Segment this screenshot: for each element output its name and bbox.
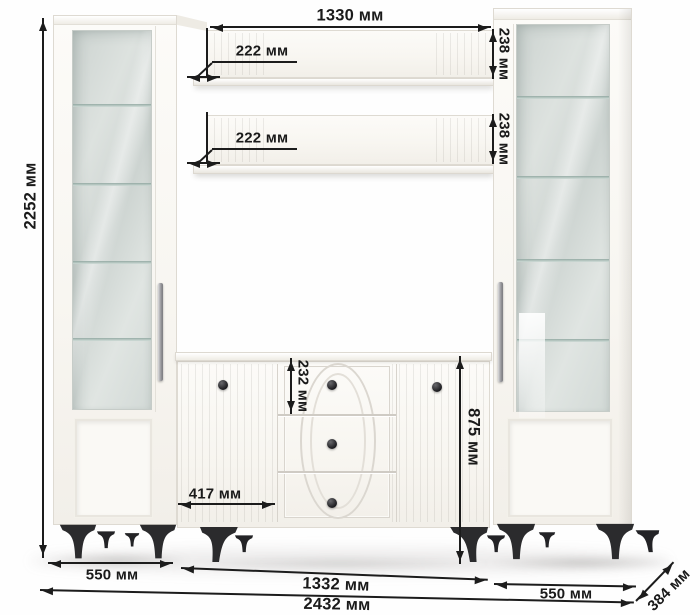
right-side-shade (618, 9, 631, 524)
door-seam (396, 364, 397, 522)
dim-shelf-depth-upper-label: 222 мм (236, 43, 289, 60)
right-door-seam (513, 24, 514, 412)
cabinet-leg (594, 523, 636, 561)
cabinet-leg (448, 527, 494, 563)
drawer-separator (278, 414, 396, 416)
dim-left-cabinet-width-label: 550 мм (86, 567, 139, 584)
glass-shelf (73, 183, 151, 186)
cabinet-leg (96, 525, 116, 555)
dim-top-drawer-height-label: 232 мм (295, 360, 312, 413)
dim-total-width-label: 2432 мм (303, 595, 370, 615)
left-cabinet-top-side (177, 15, 207, 31)
drawer-knob-2 (327, 439, 337, 449)
left-door-seam (155, 26, 156, 412)
drawer-separator (278, 471, 396, 473)
dim-sideboard-height-label: 875 мм (464, 408, 483, 466)
drawer-knob-3 (327, 498, 337, 508)
door-seam (277, 364, 278, 522)
glass-reflection (519, 313, 545, 425)
shelf-groove-right (436, 33, 488, 75)
dim-shelf-face-lower-label: 238 мм (496, 113, 513, 166)
left-door-handle (158, 283, 163, 381)
glass-shelf (73, 104, 151, 107)
dim-shelf-depth-lower-label: 222 мм (236, 130, 289, 147)
right-lower-panel (508, 419, 612, 517)
dim-sideboard-width-label: 1332 мм (302, 574, 370, 595)
cabinet-leg (194, 527, 240, 563)
right-cabinet-top (494, 9, 631, 20)
shelf-upper-ledge (193, 78, 495, 86)
dim-total-height-label: 2252 мм (22, 162, 41, 229)
cabinet-leg (634, 525, 665, 558)
oval-molding-inner (310, 373, 366, 509)
glass-shelf (517, 96, 609, 99)
dim-door-width-label: 417 мм (189, 486, 242, 503)
left-cabinet-top (54, 16, 176, 25)
glass-shelf (517, 176, 609, 179)
cabinet-leg (538, 525, 556, 555)
furniture-dimension-diagram: 1330 мм 2252 мм 222 мм 222 мм 238 мм 238… (0, 0, 700, 615)
shelf-lower-ledge (193, 165, 495, 174)
door-knob-left (218, 380, 228, 390)
drawer-knob-1 (327, 380, 337, 390)
cabinet-leg (138, 523, 178, 561)
cabinet-leg (58, 523, 98, 561)
left-glass-door (72, 30, 152, 410)
shelf-groove-right (436, 118, 488, 162)
cabinet-leg (495, 523, 537, 561)
left-lower-panel (75, 419, 152, 517)
glass-shelf (73, 261, 151, 264)
dim-shelf-face-upper-label: 238 мм (496, 28, 513, 81)
sideboard-top (175, 352, 492, 361)
door-knob-right (432, 382, 442, 392)
right-door-handle (498, 282, 503, 382)
glass-shelf (517, 259, 609, 262)
right-glass-door (516, 24, 610, 412)
glass-shelf (73, 338, 151, 341)
dim-shelf-length-label: 1330 мм (316, 7, 383, 26)
